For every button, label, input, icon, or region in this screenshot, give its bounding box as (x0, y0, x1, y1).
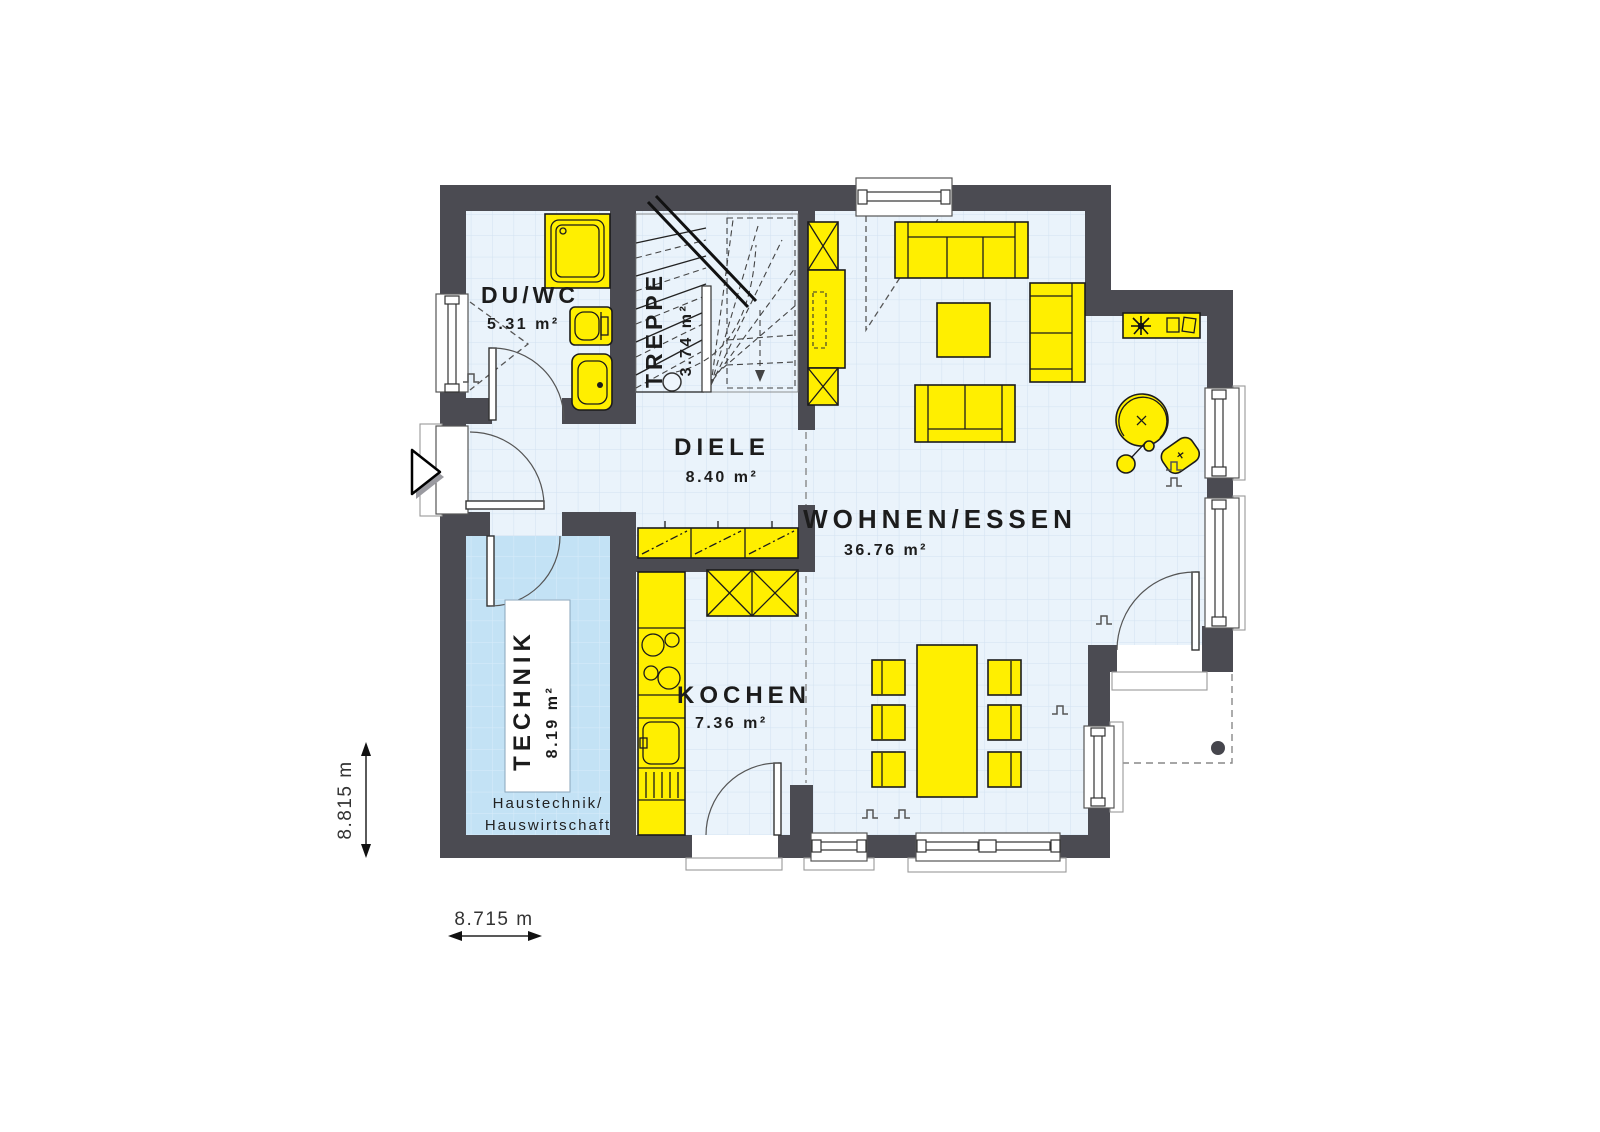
window-bottom-small (804, 833, 874, 870)
dimension-height: 8.815 m (335, 742, 371, 858)
washbasin-icon (572, 354, 612, 410)
wohnen-label: WOHNEN/ESSEN (803, 504, 1077, 534)
width-dimension-label: 8.715 m (454, 909, 533, 930)
sideboard (1123, 313, 1200, 338)
dining-table (917, 645, 977, 797)
kitchen-tall-cabinets (707, 570, 798, 616)
dining-chairs-left (872, 660, 905, 787)
window-southeast (1084, 722, 1123, 812)
window-right-upper (1205, 386, 1245, 480)
duwc-label: DU/WC (481, 282, 579, 308)
diele-label: DIELE (674, 434, 770, 461)
stair-spine (702, 286, 711, 392)
wohnen-area: 36.76 m² (844, 542, 928, 559)
duwc-area: 5.31 m² (487, 316, 560, 333)
coffee-table (937, 303, 990, 357)
treppe-label: TREPPE (641, 272, 667, 388)
technik-area: 8.19 m² (544, 686, 561, 759)
shower-icon (545, 214, 610, 288)
sofa-bottom (915, 385, 1015, 442)
technik-note-1: Haustechnik/ (493, 795, 604, 812)
sofa-top (895, 222, 1028, 278)
dimension-width: 8.715 m (448, 909, 542, 941)
height-dimension-label: 8.815 m (335, 760, 356, 839)
window-bottom-large (908, 833, 1066, 872)
technik-label: TECHNIK (509, 629, 536, 771)
dining-chairs-right (988, 660, 1021, 787)
toilet-icon (570, 307, 612, 345)
window-right-lower (1205, 496, 1245, 630)
terrace-column (1211, 741, 1225, 755)
kochen-label: KOCHEN (677, 682, 811, 709)
diele-area: 8.40 m² (686, 469, 759, 486)
sofa-right (1030, 283, 1085, 382)
treppe-area: 3.74 m² (678, 304, 695, 377)
floor-plan-canvas: DU/WC 5.31 m² TREPPE 3.74 m² DIELE 8.40 … (0, 0, 1600, 1132)
technik-note-2: Hauswirtschaft (485, 817, 611, 834)
floor-plan-page: DU/WC 5.31 m² TREPPE 3.74 m² DIELE 8.40 … (0, 0, 1600, 1132)
kochen-area: 7.36 m² (695, 715, 768, 732)
